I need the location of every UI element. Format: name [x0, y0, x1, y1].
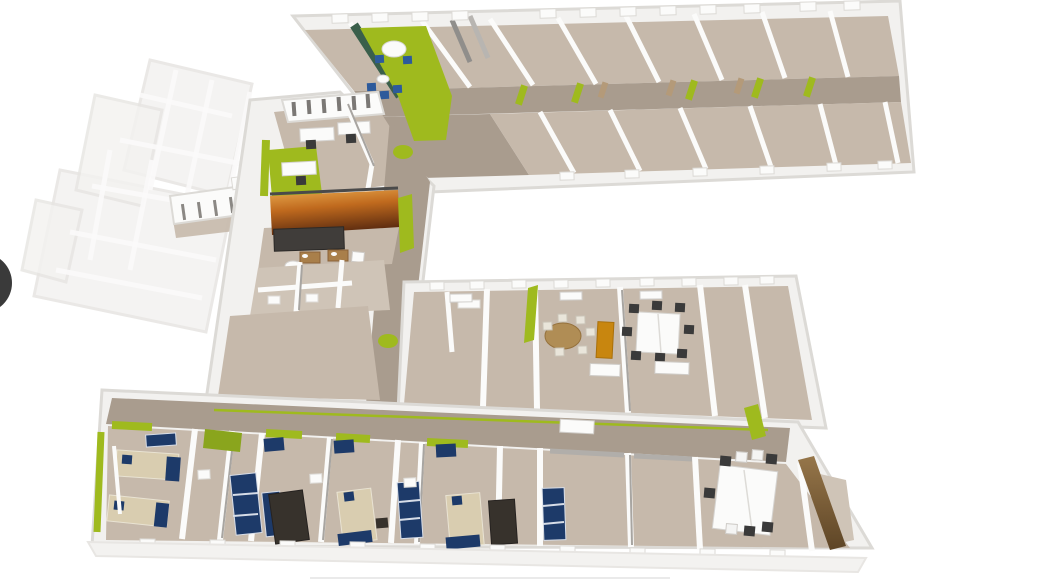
bistro-side-table [377, 75, 389, 83]
lounge-sofa [274, 227, 345, 251]
middle-low-cabinet-2 [655, 361, 689, 374]
corridor-dot-2 [378, 334, 398, 348]
bed-1a-foot [165, 457, 181, 482]
bed-1b-foot [154, 502, 169, 527]
bed-3-pillow [343, 491, 354, 501]
bedroom4-desk [436, 443, 457, 457]
reception-green-wall [264, 140, 266, 196]
lounge-chair [352, 251, 365, 262]
floorplan-viewport: 3D isometric floor plan render of a furn… [0, 0, 1040, 585]
wc-sink-1 [268, 296, 280, 304]
bedroom1-green-back-wall [112, 425, 152, 427]
reception-desk-1 [300, 127, 335, 142]
wardrobe-stack-3 [542, 488, 566, 541]
bedroom-green-back-3 [427, 442, 468, 444]
bedroom3-desk [334, 439, 355, 453]
lounge-table-1 [300, 252, 320, 263]
bedroom3-chair [376, 517, 389, 528]
dining-sideboard [596, 322, 614, 359]
bedroom4-dark-bed [488, 499, 517, 545]
lounge-cup-2 [331, 252, 337, 256]
spine-room-floor [218, 306, 380, 400]
wardrobe-stack-1 [230, 473, 262, 535]
bedroom1-overbed-table [146, 433, 177, 447]
bed-1a-pillow [122, 455, 133, 465]
bed-4-pillow [452, 496, 463, 506]
bistro-table [382, 41, 406, 57]
floorplan-render [0, 0, 1040, 585]
bedroom-green-back-2 [336, 437, 370, 439]
bottom-hairline [310, 577, 670, 579]
middle-wall-1 [483, 289, 487, 407]
lounge-green-wall [398, 194, 414, 253]
bedroom2-desk [263, 437, 284, 452]
corridor-low-cabinet [560, 419, 595, 434]
empty-room-back-wall-2 [634, 456, 692, 459]
reception-desk-3 [282, 161, 317, 176]
bedroom1-green-side-wall [97, 432, 101, 532]
bedroom-green-back-1 [266, 433, 302, 435]
lounge-table-2 [328, 250, 348, 261]
lounge-cup-1 [302, 254, 308, 258]
bedroom2-dark-bed [269, 490, 310, 544]
corridor-dot-1 [393, 145, 413, 159]
middle-low-cabinet-1 [590, 363, 620, 376]
wc-sink-2 [306, 294, 318, 302]
wardrobe-stack-2 [397, 481, 423, 538]
vestibule-green-wall [203, 429, 242, 452]
